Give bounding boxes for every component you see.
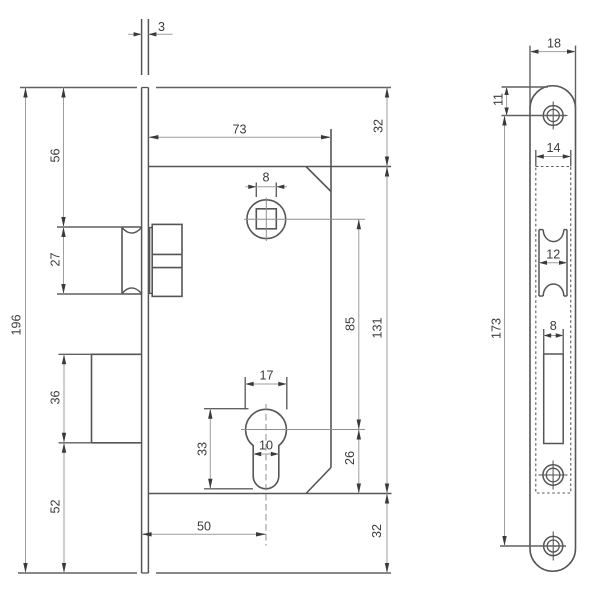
svg-text:33: 33 — [196, 442, 210, 456]
svg-text:8: 8 — [262, 171, 269, 185]
svg-text:11: 11 — [492, 93, 506, 106]
svg-text:12: 12 — [546, 248, 560, 262]
svg-text:3: 3 — [158, 20, 165, 34]
svg-text:18: 18 — [547, 37, 561, 51]
svg-text:50: 50 — [197, 520, 211, 534]
svg-text:17: 17 — [259, 369, 273, 383]
svg-text:32: 32 — [372, 119, 386, 133]
svg-text:32: 32 — [370, 524, 384, 538]
svg-text:56: 56 — [49, 148, 63, 162]
svg-text:52: 52 — [49, 499, 63, 513]
svg-text:26: 26 — [343, 451, 357, 465]
svg-text:85: 85 — [344, 317, 358, 331]
svg-text:73: 73 — [232, 123, 246, 137]
svg-text:8: 8 — [550, 319, 557, 333]
svg-text:10: 10 — [259, 439, 273, 453]
svg-text:131: 131 — [371, 317, 385, 338]
svg-text:14: 14 — [546, 141, 560, 155]
svg-text:36: 36 — [49, 390, 63, 404]
svg-text:173: 173 — [490, 318, 504, 339]
svg-text:196: 196 — [10, 314, 24, 335]
svg-text:27: 27 — [49, 252, 63, 266]
